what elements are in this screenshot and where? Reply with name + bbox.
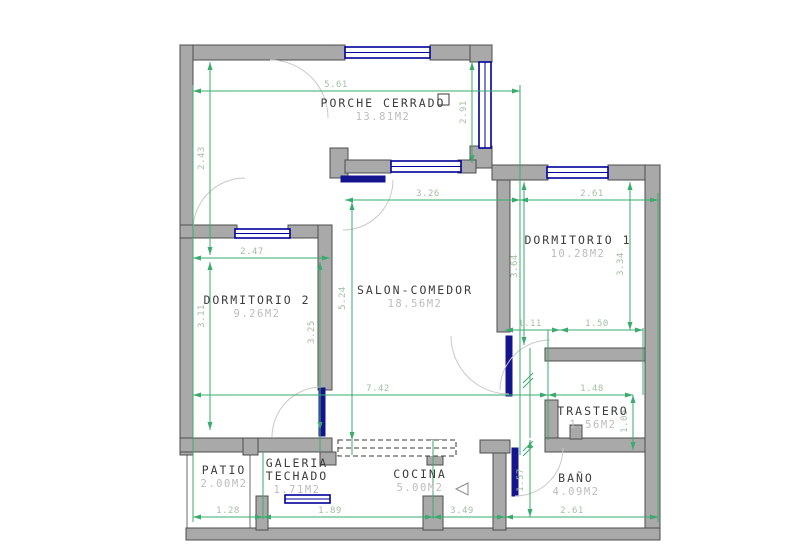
door-arc-porch-entry [270,60,328,118]
dimension-arrow [208,422,213,430]
room-label-patio: PATIO [202,463,247,477]
dimension-arrow [560,328,568,333]
room-label-cocina: COCINA [393,467,447,481]
dimension-arrow [528,509,533,517]
door-arc-porch-left [193,178,245,230]
room-area-trastero: 1.56M2 [570,419,617,431]
wall-dorm1-trastero [545,348,645,361]
dimension-arrow [628,182,633,190]
dimension-value: 5.61 [324,80,348,90]
wall-dorm2-top-left [180,225,237,238]
floor-plan-drawing: 5.613.262.612.471.111.507.421.481.281.89… [0,0,800,560]
dimension-arrow [350,202,355,210]
dimension-value: 2.43 [197,146,207,170]
dimension-value: 3.64 [510,254,520,278]
dimension-arrow [208,262,213,270]
dimension-arrow [552,328,560,333]
room-label-porche-cerrado: PORCHE CERRADO [321,96,446,110]
dimension-value: 3.25 [307,320,317,344]
dimension-arrow [512,198,520,203]
dimension-arrow [470,62,475,70]
break-mark [523,378,533,388]
dimension-arrow [350,432,355,440]
dimension-value: 1.11 [518,319,542,329]
dimension-value: 2.47 [240,247,264,257]
wall-left [180,45,193,455]
wall-bottom-stub-left [256,496,268,530]
dimension-value: 3.49 [450,506,474,516]
wall-corridor-bar [480,440,510,453]
dimension-arrow [193,515,201,520]
room-area-dormitorio-1: 10.28M2 [551,248,606,260]
wall-top-left [180,45,345,60]
dimension-value: 3.34 [616,252,626,276]
dimension-value: 2.91 [459,100,469,124]
wall-porch-column-top [470,45,492,62]
room-area-dormitorio-2: 9.26M2 [234,308,281,320]
dimension-value: 1.48 [580,384,604,394]
dimension-arrow [345,198,353,203]
dimension-break-marks [523,373,533,456]
dimension-value: 1.28 [216,506,240,516]
room-label-salon-comedor: SALON-COMEDOR [357,283,473,297]
room-area-ba-o: 4.09M2 [553,486,600,498]
room-label-dormitorio-1: DORMITORIO 1 [524,233,631,247]
dimension-value: 1.57 [516,468,526,492]
door-arc-salon-entry [343,180,393,230]
dimension-arrow [193,256,201,261]
dimension-arrow [635,328,643,333]
room-area-porche-cerrado: 13.81M2 [356,111,411,123]
dimension-arrow [528,440,533,448]
wall-trastero-left [545,400,558,440]
dimension-arrow [522,337,527,345]
room-area-cocina: 5.00M2 [397,482,444,494]
wall-galeria-stub [243,438,258,455]
dimension-arrow [631,395,636,403]
dimension-value: 3.11 [197,304,207,328]
room-label-trastero: TRASTERO [557,404,628,418]
room-label-ba-o: BAÑO [558,470,594,485]
dimension-arrow [522,182,527,190]
dimension-arrow [208,247,213,255]
floor-plan-canvas: 5.613.262.612.471.111.507.421.481.281.89… [0,0,800,560]
wall-porch-salon-arm [345,160,391,173]
dimension-arrow [628,322,633,330]
dimension-value: 2.61 [580,189,604,199]
dimension-value: 3.26 [416,189,440,199]
dimension-arrow [512,89,520,94]
dimension-arrow [193,393,201,398]
dimension-value: 1.89 [318,506,342,516]
dimension-arrow [208,62,213,70]
dimension-arrow [548,393,556,398]
room-area-galeria: 1.71M2 [274,484,321,496]
dimension-arrow [193,89,201,94]
dimension-value: 7.42 [366,384,390,394]
room-label-galeria: GALERIA [266,456,328,470]
section-arrow-marker [456,483,468,495]
wall-salon-dorm1 [497,180,510,332]
dimension-value: 2.61 [560,506,584,516]
room-label-dormitorio-2: DORMITORIO 2 [203,293,310,307]
room-area-patio: 2.00M2 [201,478,248,490]
dimension-value: 5.24 [338,286,348,310]
dimension-arrow [540,393,548,398]
dimension-arrow [625,393,633,398]
break-mark [523,373,533,383]
dimension-value: 1.50 [585,319,609,329]
room-label-galeria-line2: TECHADO [266,469,328,483]
door-leaf-salon-entry [341,176,385,182]
door-leaf-dorm1 [506,336,512,396]
wall-trastero-bano [545,438,645,452]
room-area-salon-comedor: 18.56M2 [388,298,443,310]
